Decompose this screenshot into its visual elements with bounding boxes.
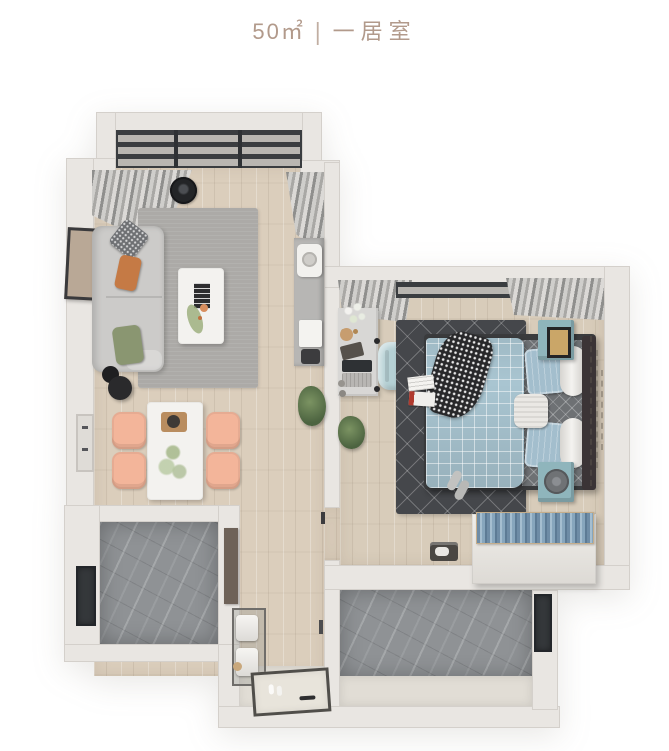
towel-stack	[236, 615, 258, 641]
door-handle	[319, 620, 323, 634]
coffee-table	[178, 268, 224, 344]
countertop-appliance	[297, 244, 322, 277]
photo-frame	[547, 327, 571, 358]
speaker	[544, 469, 569, 494]
entry-mat	[251, 667, 332, 716]
bedroom-door-opening	[324, 508, 340, 560]
laptop-screen	[342, 360, 372, 372]
dining-table	[147, 402, 203, 500]
bedroom-curtain-right	[506, 278, 604, 320]
floorplan-page: { "header": { "area": "50㎡", "separator"…	[0, 0, 669, 751]
bowl	[167, 415, 180, 428]
sofa-seam	[106, 296, 162, 298]
laptop	[342, 360, 372, 387]
nightstand-bottom	[538, 462, 574, 502]
window-handle	[82, 426, 88, 429]
mat-slippers	[268, 684, 274, 694]
dining-chair	[112, 412, 146, 449]
window-mullion	[174, 130, 178, 168]
table-flower	[200, 304, 208, 312]
tissue-holder	[430, 542, 458, 561]
table-greenery	[157, 438, 189, 486]
chair-wheel	[374, 338, 380, 344]
folded-clothes	[476, 512, 594, 544]
bed-pillow-knit	[514, 394, 548, 428]
bathroom-right-ledge	[340, 676, 532, 706]
wall-bathroom-left-bottom	[64, 644, 238, 662]
dining-chair	[206, 412, 240, 449]
calligraphy-column	[601, 370, 603, 450]
left-wall-window	[76, 414, 94, 472]
pillow-green	[111, 324, 144, 366]
bath-sponge	[233, 662, 242, 671]
bathroom-door-leaf	[224, 528, 238, 604]
nightstand-top	[538, 320, 574, 360]
laptop-keyboard	[342, 373, 372, 387]
balcony-window	[116, 130, 302, 168]
calligraphy-column	[590, 336, 592, 486]
desk-flowers	[340, 298, 368, 330]
robot-vacuum	[170, 177, 197, 204]
tissue-roll	[435, 547, 449, 556]
coffee-machine	[301, 349, 320, 364]
hallway-plant	[298, 386, 326, 426]
bedroom-window	[396, 282, 514, 298]
bathroom-right-window	[534, 594, 552, 652]
dining-chair	[112, 452, 146, 489]
window-mullion	[238, 130, 242, 168]
serving-board	[161, 412, 187, 432]
floor-lamp-shade	[108, 376, 132, 400]
dining-chair	[206, 452, 240, 489]
teddy-bear	[340, 328, 353, 341]
window-handle	[82, 448, 88, 451]
chair-seat-line	[385, 350, 389, 382]
countertop-box	[299, 320, 322, 347]
bathroom-left-window	[76, 566, 96, 626]
desk-cup	[338, 380, 345, 387]
bathroom-left-floor	[100, 522, 218, 644]
calligraphy-column	[596, 350, 598, 468]
floorplan-rendering	[0, 0, 669, 751]
bedroom-plant	[338, 416, 365, 449]
floor-drain	[299, 695, 315, 700]
bathroom-right-floor	[340, 590, 532, 678]
door-hinge	[321, 512, 325, 524]
magazines-on-rug	[409, 391, 436, 407]
wall-bedroom-right	[604, 266, 630, 590]
appliance-dial	[302, 252, 317, 267]
wall-calligraphy-decor	[588, 330, 604, 494]
